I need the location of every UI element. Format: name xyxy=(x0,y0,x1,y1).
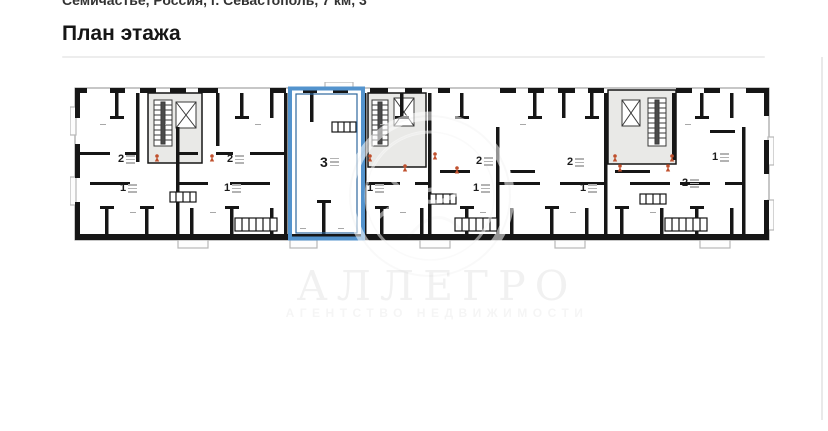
agency-name-watermark: АЛЛЕГРО xyxy=(287,262,587,310)
unit-label-2e: 2 xyxy=(682,178,699,189)
unit-label-1a: 1 xyxy=(120,183,137,194)
floor-plan-image: 2 1 2 1 3 1 2 1 2 1 2 1 xyxy=(70,82,774,254)
unit-label-3-highlighted[interactable]: 3 xyxy=(320,155,339,169)
unit-label-1f: 1 xyxy=(712,152,729,163)
page-edge-line xyxy=(821,57,823,420)
page-title: План этажа xyxy=(62,22,181,46)
floor-plan-drawing xyxy=(70,82,774,254)
unit-label-2b: 2 xyxy=(227,154,244,165)
unit-label-2a: 2 xyxy=(118,154,135,165)
unit-label-1c: 1 xyxy=(367,183,384,194)
unit-label-1b: 1 xyxy=(224,183,241,194)
breadcrumb: Семичастье, Россия, г. Севастополь, 7 км… xyxy=(62,0,367,8)
unit-label-2d: 2 xyxy=(567,157,584,168)
unit-label-1d: 1 xyxy=(473,183,490,194)
floor-plan-page: Семичастье, Россия, г. Севастополь, 7 км… xyxy=(0,0,828,431)
unit-label-2c: 2 xyxy=(476,156,493,167)
unit-label-1e: 1 xyxy=(580,183,597,194)
agency-tagline-watermark: АГЕНТСТВО НЕДВИЖИМОСТИ xyxy=(277,306,597,320)
header-divider xyxy=(62,56,765,58)
